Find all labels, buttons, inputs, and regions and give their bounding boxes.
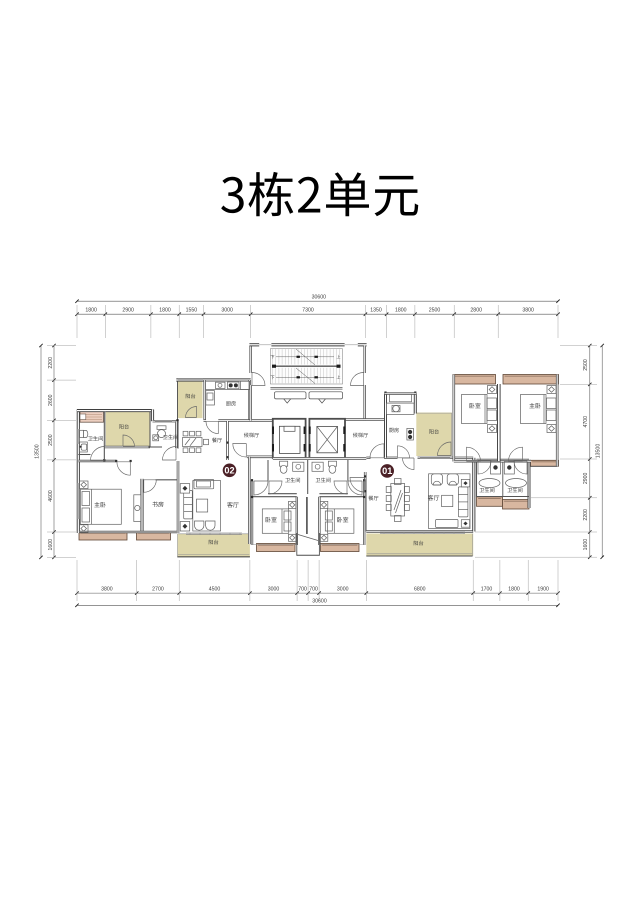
svg-text:01: 01 xyxy=(382,466,392,476)
svg-text:30600: 30600 xyxy=(312,599,327,605)
svg-text:1800: 1800 xyxy=(159,307,171,313)
svg-text:3800: 3800 xyxy=(522,307,534,313)
svg-text:3000: 3000 xyxy=(221,307,233,313)
svg-text:3000: 3000 xyxy=(268,586,280,592)
svg-text:13500: 13500 xyxy=(596,444,602,459)
svg-text:2600: 2600 xyxy=(48,394,54,406)
svg-text:2200: 2200 xyxy=(583,509,589,521)
svg-text:1800: 1800 xyxy=(395,307,407,313)
svg-text:1600: 1600 xyxy=(48,539,54,551)
svg-text:2700: 2700 xyxy=(152,586,164,592)
svg-text:2800: 2800 xyxy=(470,307,482,313)
svg-text:6800: 6800 xyxy=(414,586,426,592)
svg-text:2900: 2900 xyxy=(583,473,589,485)
svg-text:3000: 3000 xyxy=(337,586,349,592)
svg-text:1800: 1800 xyxy=(508,586,520,592)
svg-text:30600: 30600 xyxy=(312,295,327,301)
svg-text:2500: 2500 xyxy=(48,434,54,446)
svg-text:02: 02 xyxy=(224,466,234,476)
svg-text:2200: 2200 xyxy=(48,357,54,369)
svg-text:4500: 4500 xyxy=(209,586,221,592)
svg-text:2500: 2500 xyxy=(429,307,441,313)
svg-text:4600: 4600 xyxy=(48,490,54,502)
svg-text:3800: 3800 xyxy=(101,586,113,592)
svg-text:4700: 4700 xyxy=(583,416,589,428)
svg-text:1900: 1900 xyxy=(537,586,549,592)
svg-text:1800: 1800 xyxy=(85,307,97,313)
svg-text:2900: 2900 xyxy=(122,307,134,313)
svg-text:1700: 1700 xyxy=(481,586,493,592)
svg-text:1550: 1550 xyxy=(186,307,198,313)
svg-text:7300: 7300 xyxy=(302,307,314,313)
svg-text:700: 700 xyxy=(309,586,318,592)
svg-text:1600: 1600 xyxy=(583,539,589,551)
svg-text:1350: 1350 xyxy=(370,307,382,313)
svg-text:13500: 13500 xyxy=(34,444,40,459)
svg-text:2500: 2500 xyxy=(583,359,589,371)
svg-text:700: 700 xyxy=(298,586,307,592)
